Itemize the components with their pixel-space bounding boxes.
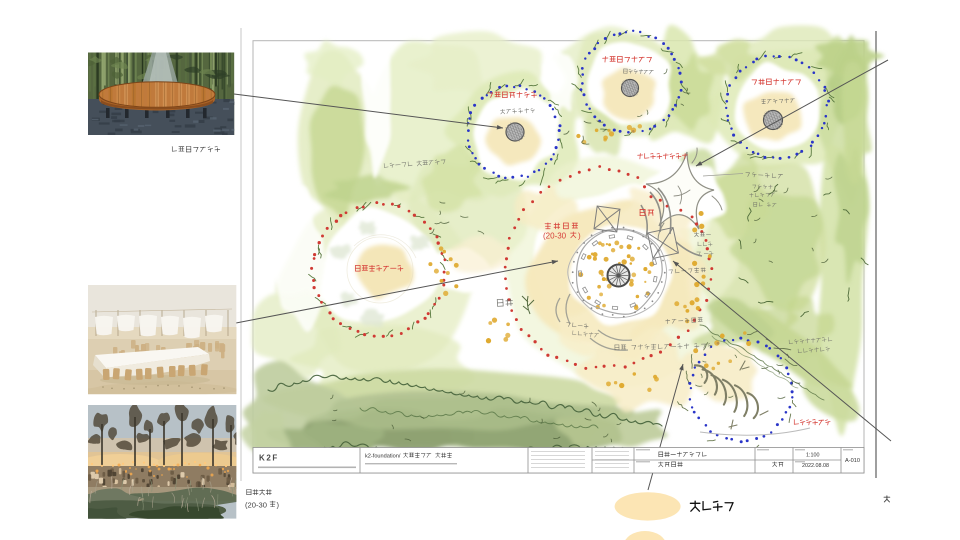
svg-text:2022.08.08: 2022.08.08 <box>802 463 829 469</box>
svg-text:): ) <box>578 232 581 241</box>
svg-text:(20-30: (20-30 <box>543 232 567 241</box>
svg-text:K2F: K2F <box>259 454 279 463</box>
svg-text:(20-30: (20-30 <box>245 501 267 510</box>
svg-text:k2-foundation/: k2-foundation/ <box>365 454 401 460</box>
svg-text:A-010: A-010 <box>845 458 860 464</box>
svg-text:): ) <box>277 501 280 510</box>
svg-text:1:100: 1:100 <box>806 453 820 459</box>
